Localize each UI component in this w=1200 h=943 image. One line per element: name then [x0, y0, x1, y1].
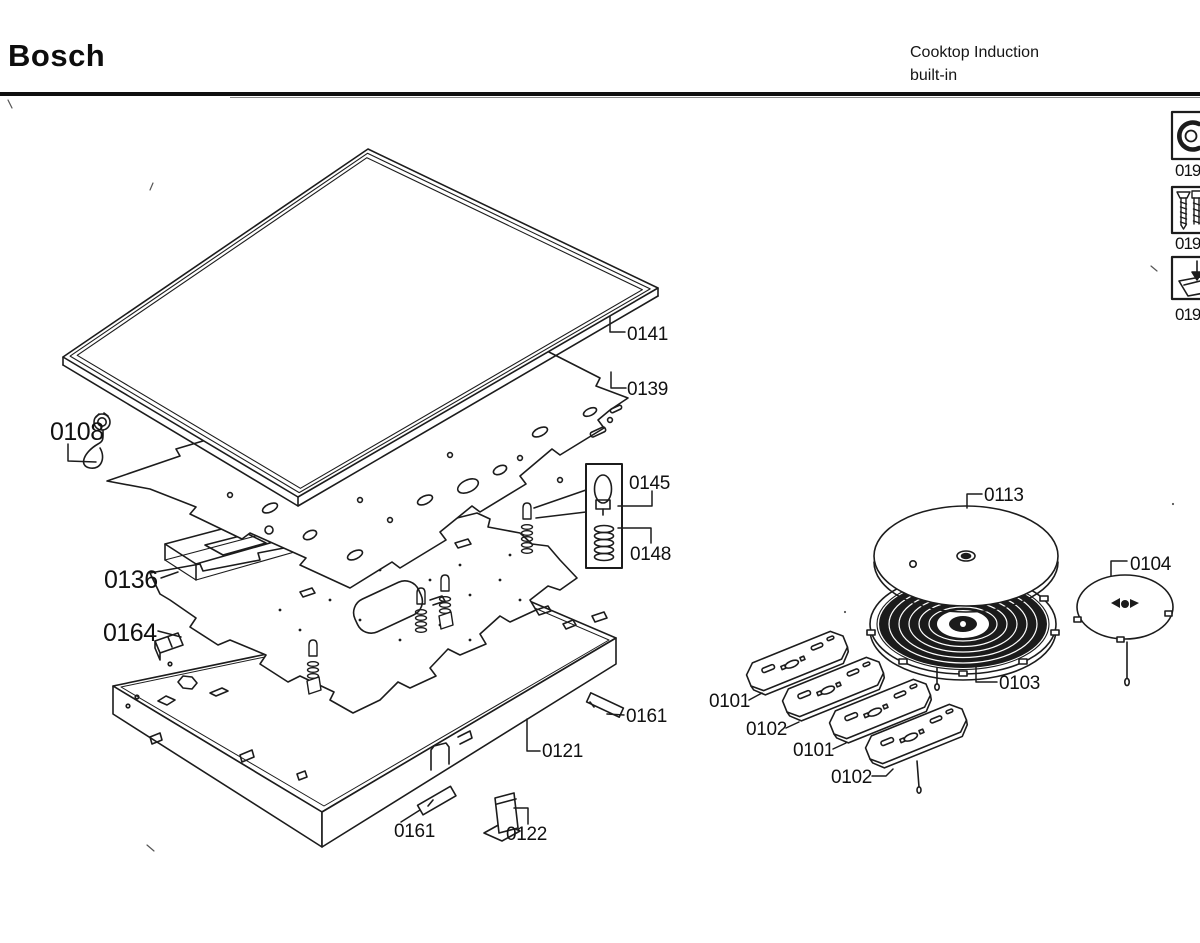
part-label-0108: 0108 [50, 418, 104, 446]
part-label-0102-a: 0102 [746, 719, 787, 740]
part-label-0161-right: 0161 [626, 706, 667, 727]
part-label-0148: 0148 [630, 544, 671, 565]
screws-icon [1172, 187, 1200, 233]
part-label-0161-front: 0161 [394, 821, 435, 842]
part-label-0136: 0136 [104, 566, 158, 594]
part-label-0145: 0145 [629, 473, 670, 494]
part-label-0141: 0141 [627, 324, 668, 345]
part-label-0104: 0104 [1130, 554, 1172, 575]
part-label-0164: 0164 [103, 619, 157, 647]
part-label-0139: 0139 [627, 379, 668, 400]
fixing-rail-right-0161 [587, 693, 624, 717]
glass-ceramic-top-0141 [63, 149, 658, 506]
part-label-0103: 0103 [999, 673, 1040, 694]
part-label-0113: 0113 [984, 485, 1024, 506]
catalog-icon-group: 019 019 [1172, 112, 1200, 324]
exploded-view-drawing: 0141 0139 0108 0145 0148 0136 0164 0161 … [0, 0, 1200, 943]
part-label-0102-b: 0102 [831, 767, 872, 788]
part-label-0101-a: 0101 [709, 691, 750, 712]
catalog-icon-label-3: 019 [1175, 305, 1200, 324]
clamp-tool-icon [1172, 112, 1200, 159]
shield-disc-0104 [1074, 575, 1173, 686]
catalog-icon-label-2: 019 [1175, 234, 1200, 253]
fixing-rail-front-0161 [418, 786, 456, 815]
catalog-icon-label-1: 019 [1175, 161, 1200, 180]
part-label-0121: 0121 [542, 741, 583, 762]
part-label-0101-b: 0101 [793, 740, 834, 761]
part-label-0122: 0122 [506, 824, 547, 845]
bracket-funnel-icon [1172, 257, 1200, 299]
parts-diagram-page: Bosch Cooktop Induction built-in [0, 0, 1200, 943]
